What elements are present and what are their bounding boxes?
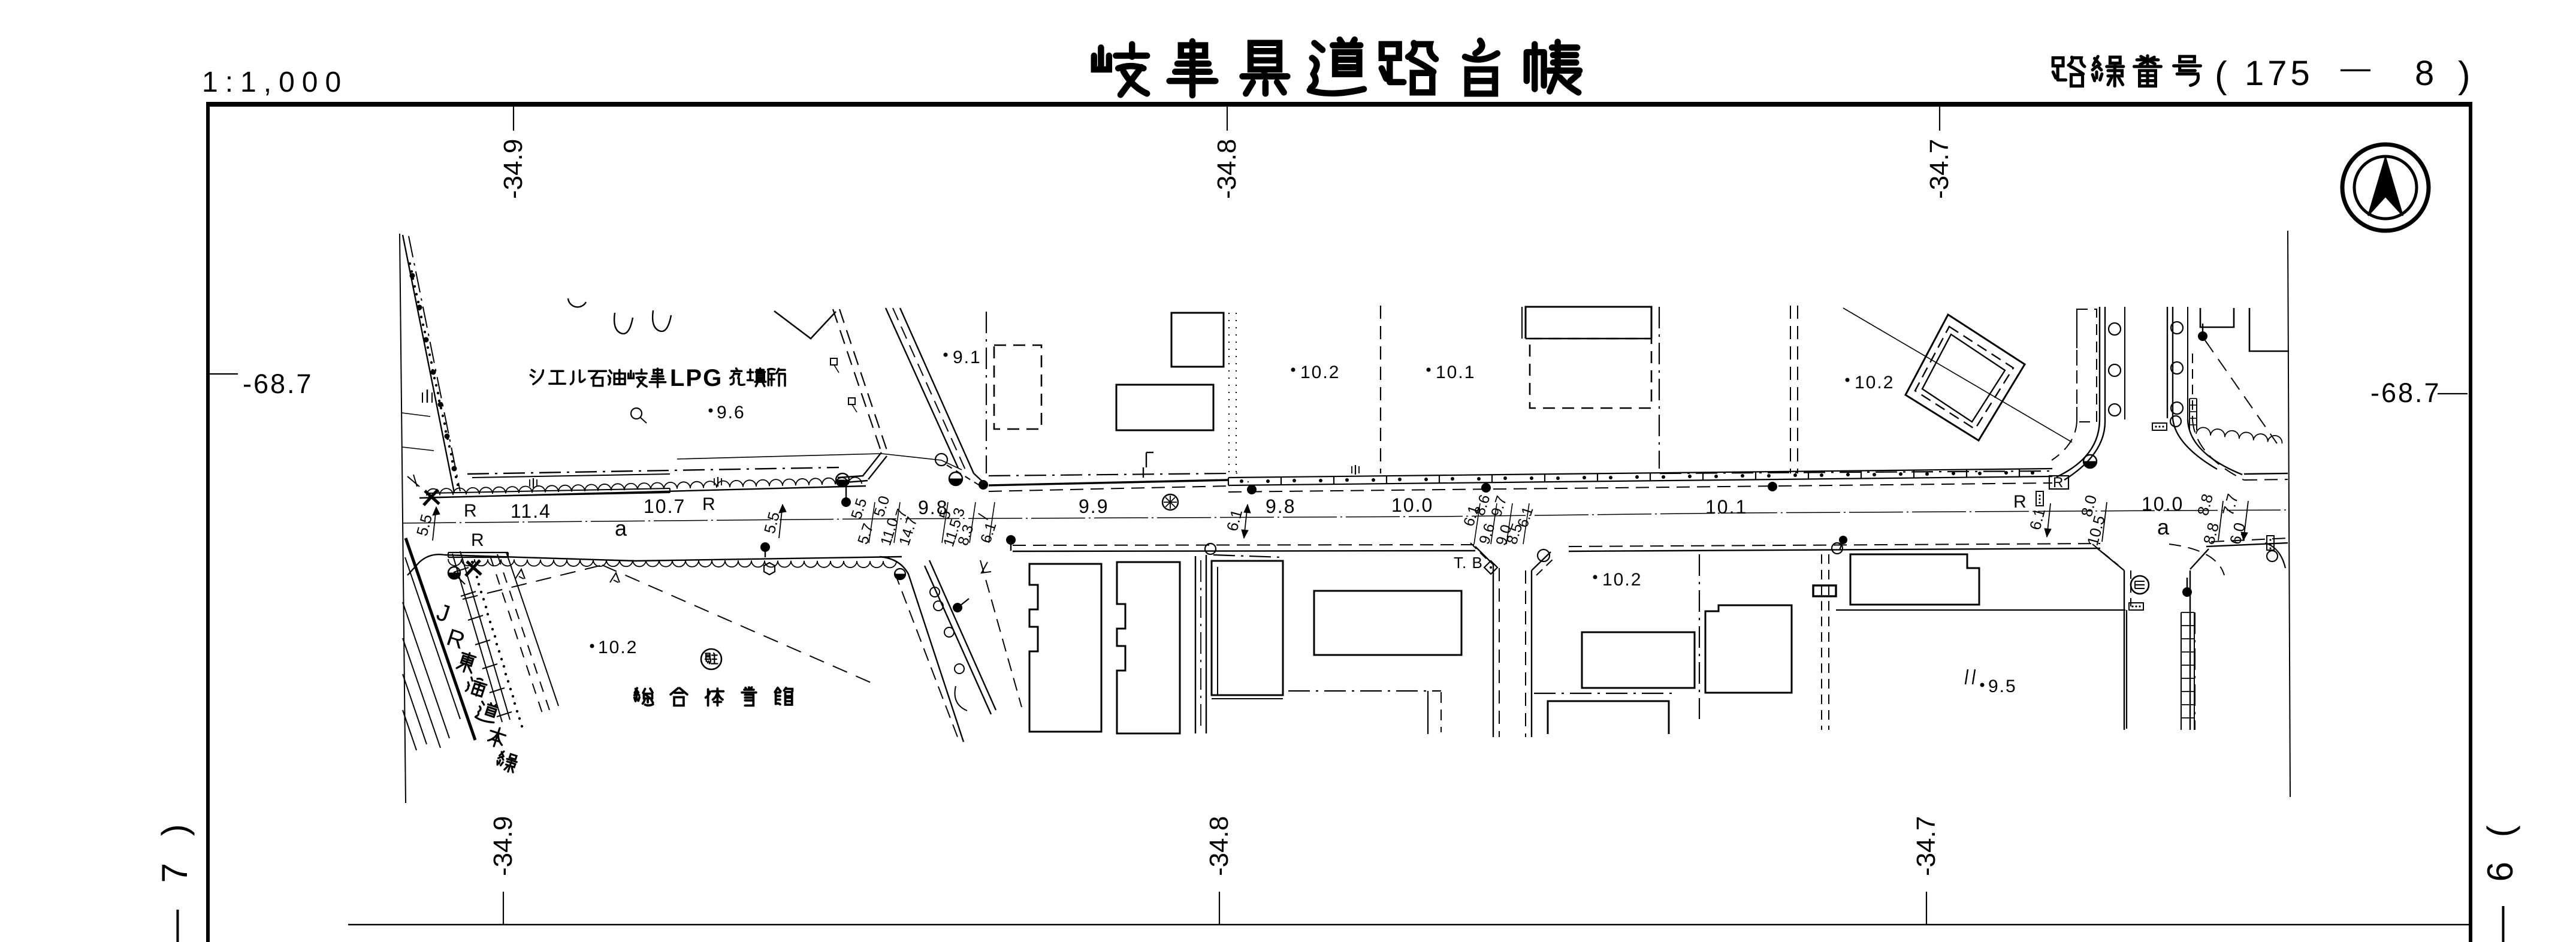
svg-text:9.5: 9.5 (1988, 677, 2017, 696)
svg-text:10.1: 10.1 (1436, 363, 1475, 382)
svg-text:10.2: 10.2 (1300, 363, 1340, 382)
svg-text:-34.7: -34.7 (1925, 139, 1954, 199)
svg-text:10.1: 10.1 (1705, 496, 1747, 518)
svg-text:10.0: 10.0 (2142, 493, 2184, 515)
svg-text:T. B: T. B (1454, 554, 1483, 572)
svg-text:—: — (2341, 51, 2370, 84)
svg-text:-34.7: -34.7 (1911, 816, 1941, 876)
svg-text:-68.7: -68.7 (2370, 378, 2441, 408)
svg-text:R: R (2053, 475, 2063, 491)
svg-text:9.9: 9.9 (1079, 496, 1109, 517)
svg-text:-34.8: -34.8 (1212, 139, 1242, 199)
svg-text:175: 175 (2245, 54, 2314, 93)
svg-text:-34.9: -34.9 (499, 139, 528, 199)
svg-text:R: R (464, 501, 477, 521)
svg-text:9.6: 9.6 (717, 403, 745, 422)
svg-text:10.2: 10.2 (1855, 373, 1894, 393)
svg-text:8: 8 (2415, 54, 2434, 93)
svg-text:a: a (2157, 515, 2170, 539)
svg-text:LPG: LPG (670, 365, 723, 391)
svg-text:R: R (702, 494, 715, 514)
svg-text:1:1,000: 1:1,000 (202, 67, 348, 98)
svg-text:): ) (2458, 55, 2471, 96)
svg-text:R: R (471, 530, 484, 550)
svg-text:10.7: 10.7 (644, 496, 685, 517)
svg-text:9.8: 9.8 (1266, 496, 1295, 517)
svg-text:9.1: 9.1 (953, 348, 982, 367)
svg-text:-68.7: -68.7 (243, 369, 313, 399)
svg-text:-34.9: -34.9 (488, 816, 518, 876)
svg-text:10.2: 10.2 (1602, 570, 1642, 590)
svg-text:— 6 (: — 6 ( (2480, 818, 2520, 942)
svg-text:10.2: 10.2 (598, 638, 638, 657)
svg-text:-34.8: -34.8 (1204, 816, 1234, 876)
svg-text:a: a (615, 516, 627, 541)
svg-text:(: ( (2215, 55, 2227, 96)
svg-text:— 7 ): — 7 ) (155, 816, 195, 942)
svg-text:10.0: 10.0 (1391, 494, 1433, 516)
svg-text:11.4: 11.4 (511, 500, 551, 522)
svg-text:R: R (2013, 492, 2027, 512)
